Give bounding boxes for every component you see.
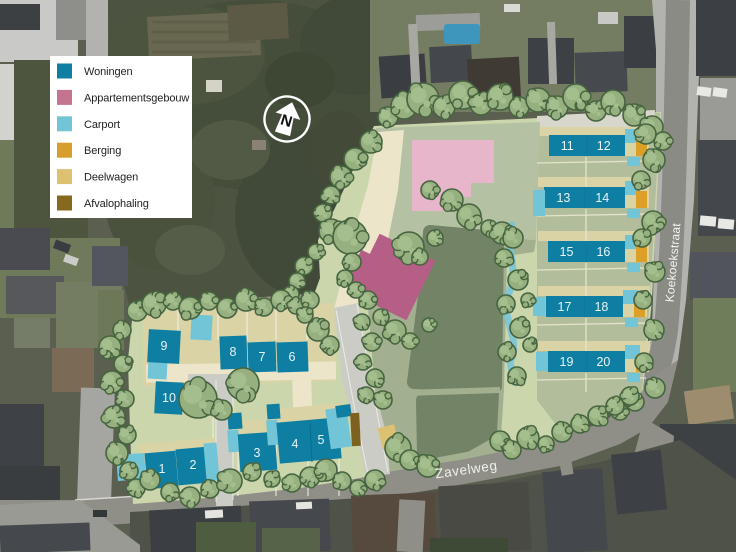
svg-text:11: 11 [561,139,574,153]
svg-text:Afvalophaling: Afvalophaling [84,198,149,210]
svg-text:5: 5 [318,433,325,447]
svg-text:7: 7 [259,350,266,364]
svg-text:Deelwagen: Deelwagen [84,172,138,184]
svg-text:19: 19 [560,355,574,369]
svg-text:8: 8 [230,345,237,359]
svg-text:2: 2 [190,458,197,472]
svg-text:1: 1 [159,462,166,476]
svg-text:6: 6 [289,350,296,364]
svg-text:4: 4 [292,437,299,451]
svg-text:10: 10 [162,391,176,405]
svg-text:12: 12 [597,139,611,153]
svg-text:20: 20 [596,355,610,369]
svg-text:13: 13 [556,191,570,205]
svg-text:9: 9 [161,339,168,353]
svg-text:14: 14 [595,191,609,205]
svg-text:Berging: Berging [84,145,121,157]
svg-text:Woningen: Woningen [84,66,133,78]
svg-text:17: 17 [558,300,572,314]
svg-text:Appartementsgebouw: Appartementsgebouw [84,92,189,104]
svg-text:15: 15 [560,245,574,259]
svg-text:18: 18 [594,300,608,314]
svg-text:Carport: Carport [84,119,120,131]
svg-text:16: 16 [596,245,610,259]
svg-text:3: 3 [254,446,261,460]
